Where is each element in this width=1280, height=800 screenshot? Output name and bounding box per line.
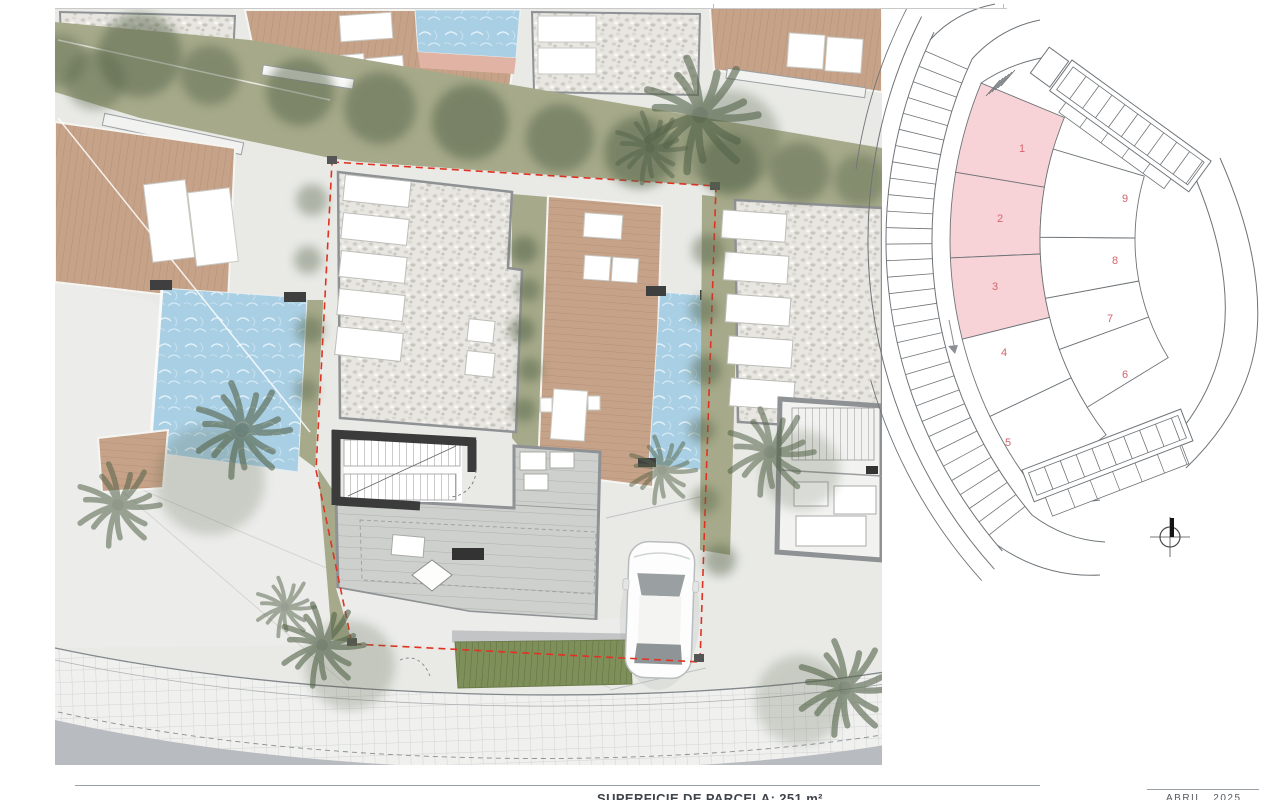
- tree-canopy: [294, 378, 318, 402]
- tree-canopy: [266, 58, 334, 126]
- car-roof: [638, 595, 682, 644]
- car-mirror: [623, 579, 629, 590]
- keyplan-parcel-number-5: 5: [1005, 437, 1011, 449]
- keyplan-parcel-number-1: 1: [1019, 143, 1025, 155]
- parcel-area-label: SUPERFICIE DE PARCELA: 251 m²: [597, 791, 823, 800]
- wall: [336, 501, 420, 506]
- north-indicator-icon: [1150, 517, 1190, 557]
- tree-canopy: [518, 358, 542, 382]
- keyplan-parcel-number-9: 9: [1122, 193, 1128, 205]
- tree-canopy: [704, 544, 736, 576]
- site-plan-svg: 123456789: [0, 0, 1280, 800]
- site-plan: [34, 8, 893, 769]
- tree-canopy: [296, 184, 328, 216]
- tree-canopy: [34, 34, 86, 86]
- road-arrow-head: [948, 345, 958, 354]
- keyplan-parcel-number-7: 7: [1107, 313, 1113, 325]
- pool-wall-block: [646, 286, 666, 296]
- skylight: [538, 48, 596, 74]
- tree-canopy: [509, 317, 535, 343]
- hedge: [455, 640, 632, 688]
- tree-canopy: [834, 154, 886, 206]
- tree-canopy: [344, 72, 416, 144]
- tree-canopy: [296, 316, 324, 344]
- tree-canopy: [294, 246, 322, 274]
- trim-tick: [1003, 4, 1004, 9]
- stair-flight: [344, 474, 456, 500]
- keyplan-parcel-number-6: 6: [1122, 369, 1128, 381]
- keyplan-parcel-number-8: 8: [1112, 255, 1118, 267]
- stair-core: [332, 430, 476, 506]
- tree-canopy: [770, 142, 830, 202]
- tree-canopy: [432, 84, 508, 160]
- pool-wall-block: [150, 280, 172, 290]
- car-windshield: [637, 573, 686, 597]
- trim-tick: [713, 4, 714, 9]
- sun-lounger: [787, 33, 825, 69]
- car-mirror: [693, 581, 699, 592]
- keyplan-parcel-number-3: 3: [992, 281, 998, 293]
- tree-canopy: [512, 398, 536, 422]
- tree-canopy: [180, 45, 240, 105]
- title-block-line: [1147, 789, 1259, 790]
- date-label: ABRIL 2025: [1166, 793, 1242, 800]
- tree-canopy: [689, 417, 715, 443]
- pool: [415, 10, 520, 58]
- keyplan-parcel-number-4: 4: [1001, 347, 1007, 359]
- tree-canopy: [691, 486, 719, 514]
- skylight: [538, 16, 596, 42]
- plan-sheet: 123456789 SUPERFICIE DE PARCELA: 251 m² …: [0, 0, 1280, 800]
- title-block-line: [75, 785, 1040, 786]
- tree-canopy: [692, 234, 724, 266]
- sheet-trim-line: [55, 8, 1007, 9]
- tree-canopy: [526, 104, 594, 172]
- sun-lounger: [188, 188, 239, 267]
- pool-wall-block: [284, 292, 306, 302]
- sun-lounger: [143, 180, 194, 263]
- tree-canopy: [516, 278, 540, 302]
- key-plan: 123456789: [856, 4, 1258, 581]
- sun-lounger: [825, 37, 863, 73]
- road-edge: [871, 380, 982, 580]
- tree-canopy: [690, 296, 718, 324]
- tree-canopy: [510, 236, 538, 264]
- car-rear-window: [634, 643, 683, 665]
- keyplan-parcel-number-2: 2: [997, 213, 1003, 225]
- tree-canopy: [691, 355, 721, 385]
- wood-deck: [538, 196, 662, 487]
